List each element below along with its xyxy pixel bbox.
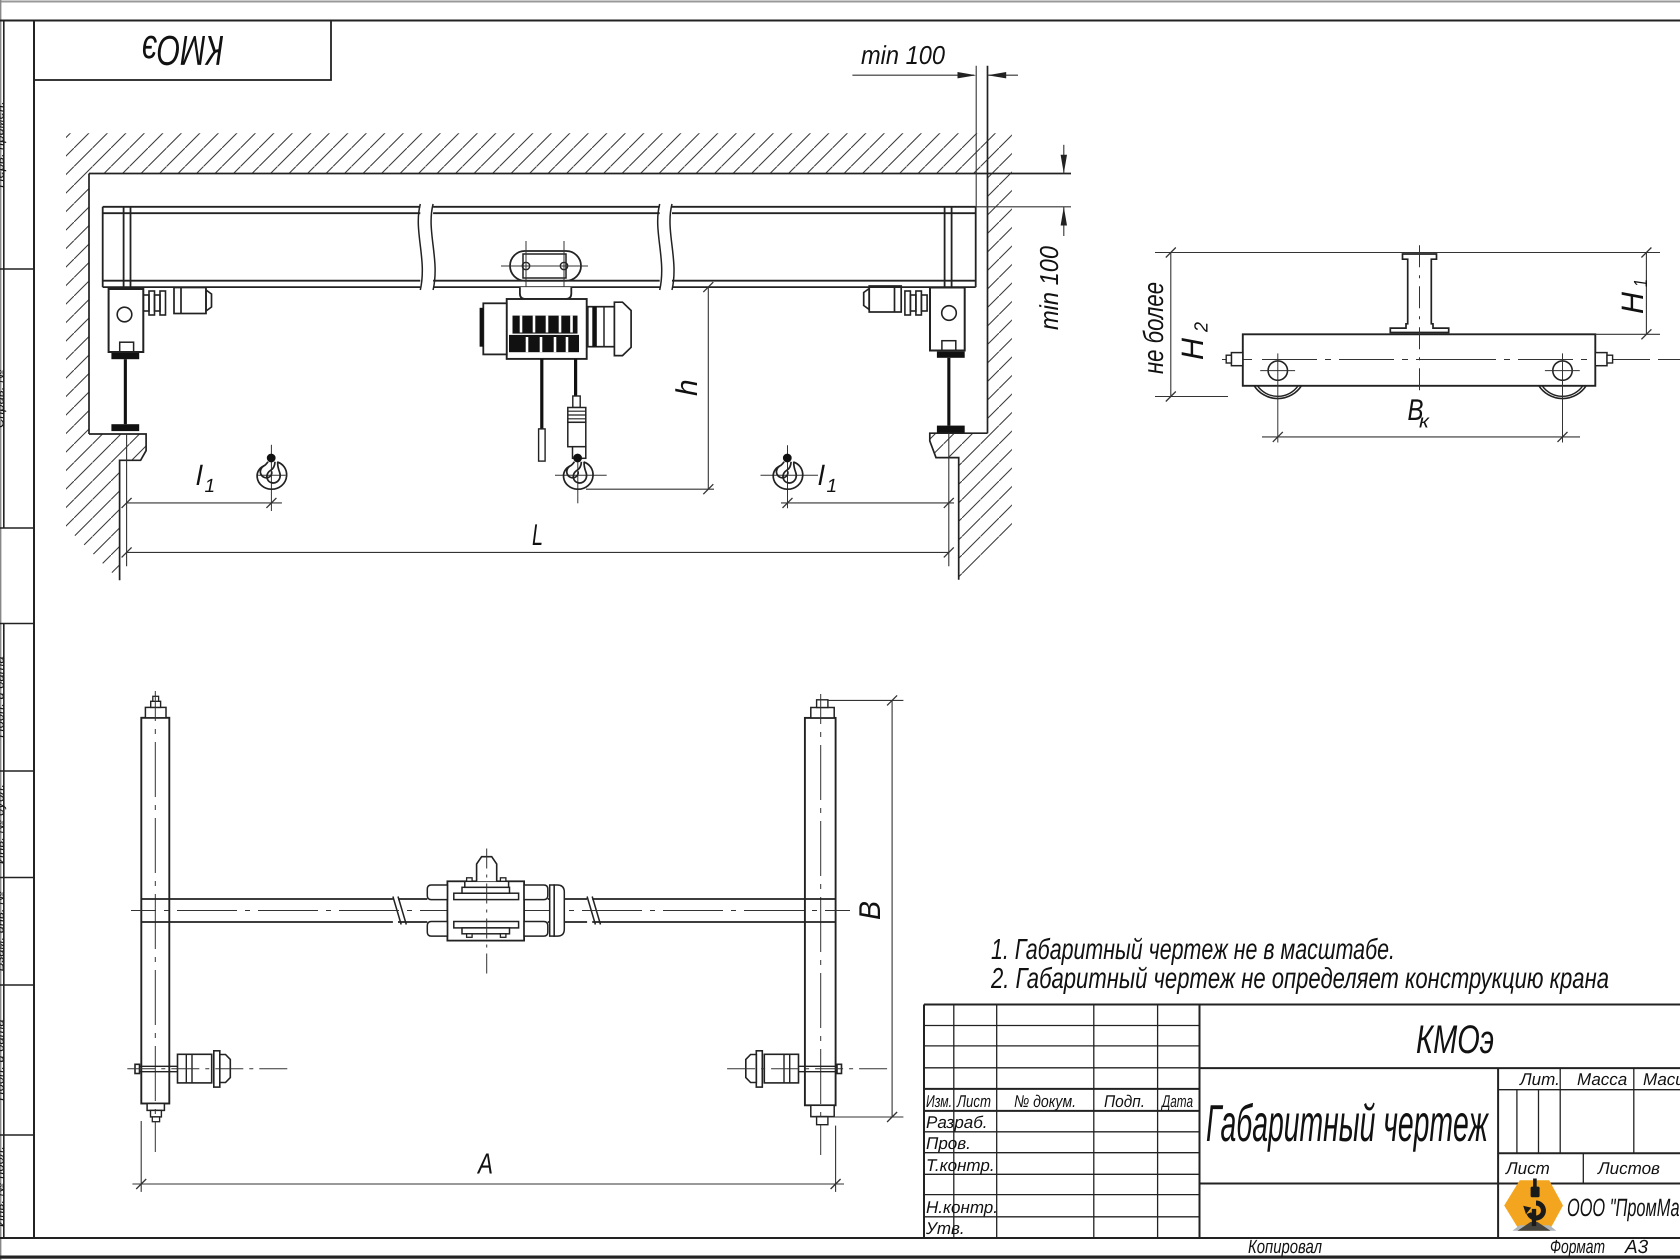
svg-text:l: l (818, 460, 825, 491)
svg-text:2. Габаритный чертеж не опреде: 2. Габаритный чертеж не определяет конст… (990, 963, 1609, 995)
svg-text:Габаритный чертеж: Габаритный чертеж (1206, 1095, 1489, 1153)
svg-text:Перв. примен.: Перв. примен. (0, 101, 7, 187)
svg-text:Т.контр.: Т.контр. (926, 1156, 995, 1175)
svg-text:B: B (854, 901, 887, 920)
svg-text:Взам. инв. №: Взам. инв. № (0, 891, 7, 971)
svg-text:H: H (1175, 337, 1210, 360)
svg-text:Утв.: Утв. (925, 1219, 965, 1238)
svg-text:не более: не более (1138, 282, 1169, 374)
svg-text:к: к (1419, 412, 1430, 433)
svg-text:Инв. № подл.: Инв. № подл. (0, 1146, 7, 1227)
svg-text:Подп. и дата: Подп. и дата (0, 656, 7, 737)
svg-text:L: L (532, 519, 543, 552)
svg-text:Листов: Листов (1597, 1159, 1660, 1178)
svg-text:h: h (671, 379, 704, 396)
svg-text:min 100: min 100 (861, 40, 945, 70)
svg-text:1: 1 (1631, 279, 1652, 287)
svg-text:Формат: Формат (1550, 1237, 1605, 1258)
svg-text:Инв. № дубл.: Инв. № дубл. (0, 784, 7, 864)
svg-text:Масшт: Масшт (1643, 1070, 1680, 1089)
svg-text:Изм.: Изм. (926, 1092, 952, 1111)
svg-text:Лит.: Лит. (1519, 1070, 1560, 1089)
svg-text:1: 1 (827, 476, 838, 497)
svg-text:l: l (196, 460, 203, 491)
svg-text:Н.контр.: Н.контр. (926, 1198, 998, 1217)
svg-text:КМОэ: КМОэ (142, 27, 224, 74)
svg-text:Дата: Дата (1161, 1092, 1193, 1111)
svg-text:2: 2 (1192, 322, 1213, 333)
svg-text:min 100: min 100 (1034, 246, 1064, 330)
svg-text:№ докум.: № докум. (1014, 1092, 1076, 1111)
svg-text:Масса: Масса (1577, 1070, 1627, 1089)
svg-text:КМОэ: КМОэ (1416, 1018, 1494, 1062)
svg-text:H: H (1615, 291, 1650, 314)
svg-text:ООО "ПромМаш": ООО "ПромМаш" (1567, 1194, 1680, 1222)
svg-text:Справ. №: Справ. № (0, 369, 7, 428)
svg-text:Пров.: Пров. (926, 1134, 971, 1153)
svg-text:Копировал: Копировал (1248, 1237, 1322, 1258)
svg-text:Подп. и дата: Подп. и дата (0, 1019, 7, 1100)
svg-text:Разраб.: Разраб. (926, 1113, 988, 1132)
svg-text:Подп.: Подп. (1104, 1092, 1145, 1111)
svg-text:1. Габаритный чертеж не в масш: 1. Габаритный чертеж не в масштабе. (991, 934, 1395, 966)
svg-text:Лист: Лист (956, 1092, 991, 1111)
svg-text:А3: А3 (1624, 1237, 1649, 1258)
svg-text:Лист: Лист (1505, 1159, 1550, 1178)
svg-text:1: 1 (205, 476, 216, 497)
svg-text:A: A (476, 1149, 493, 1181)
